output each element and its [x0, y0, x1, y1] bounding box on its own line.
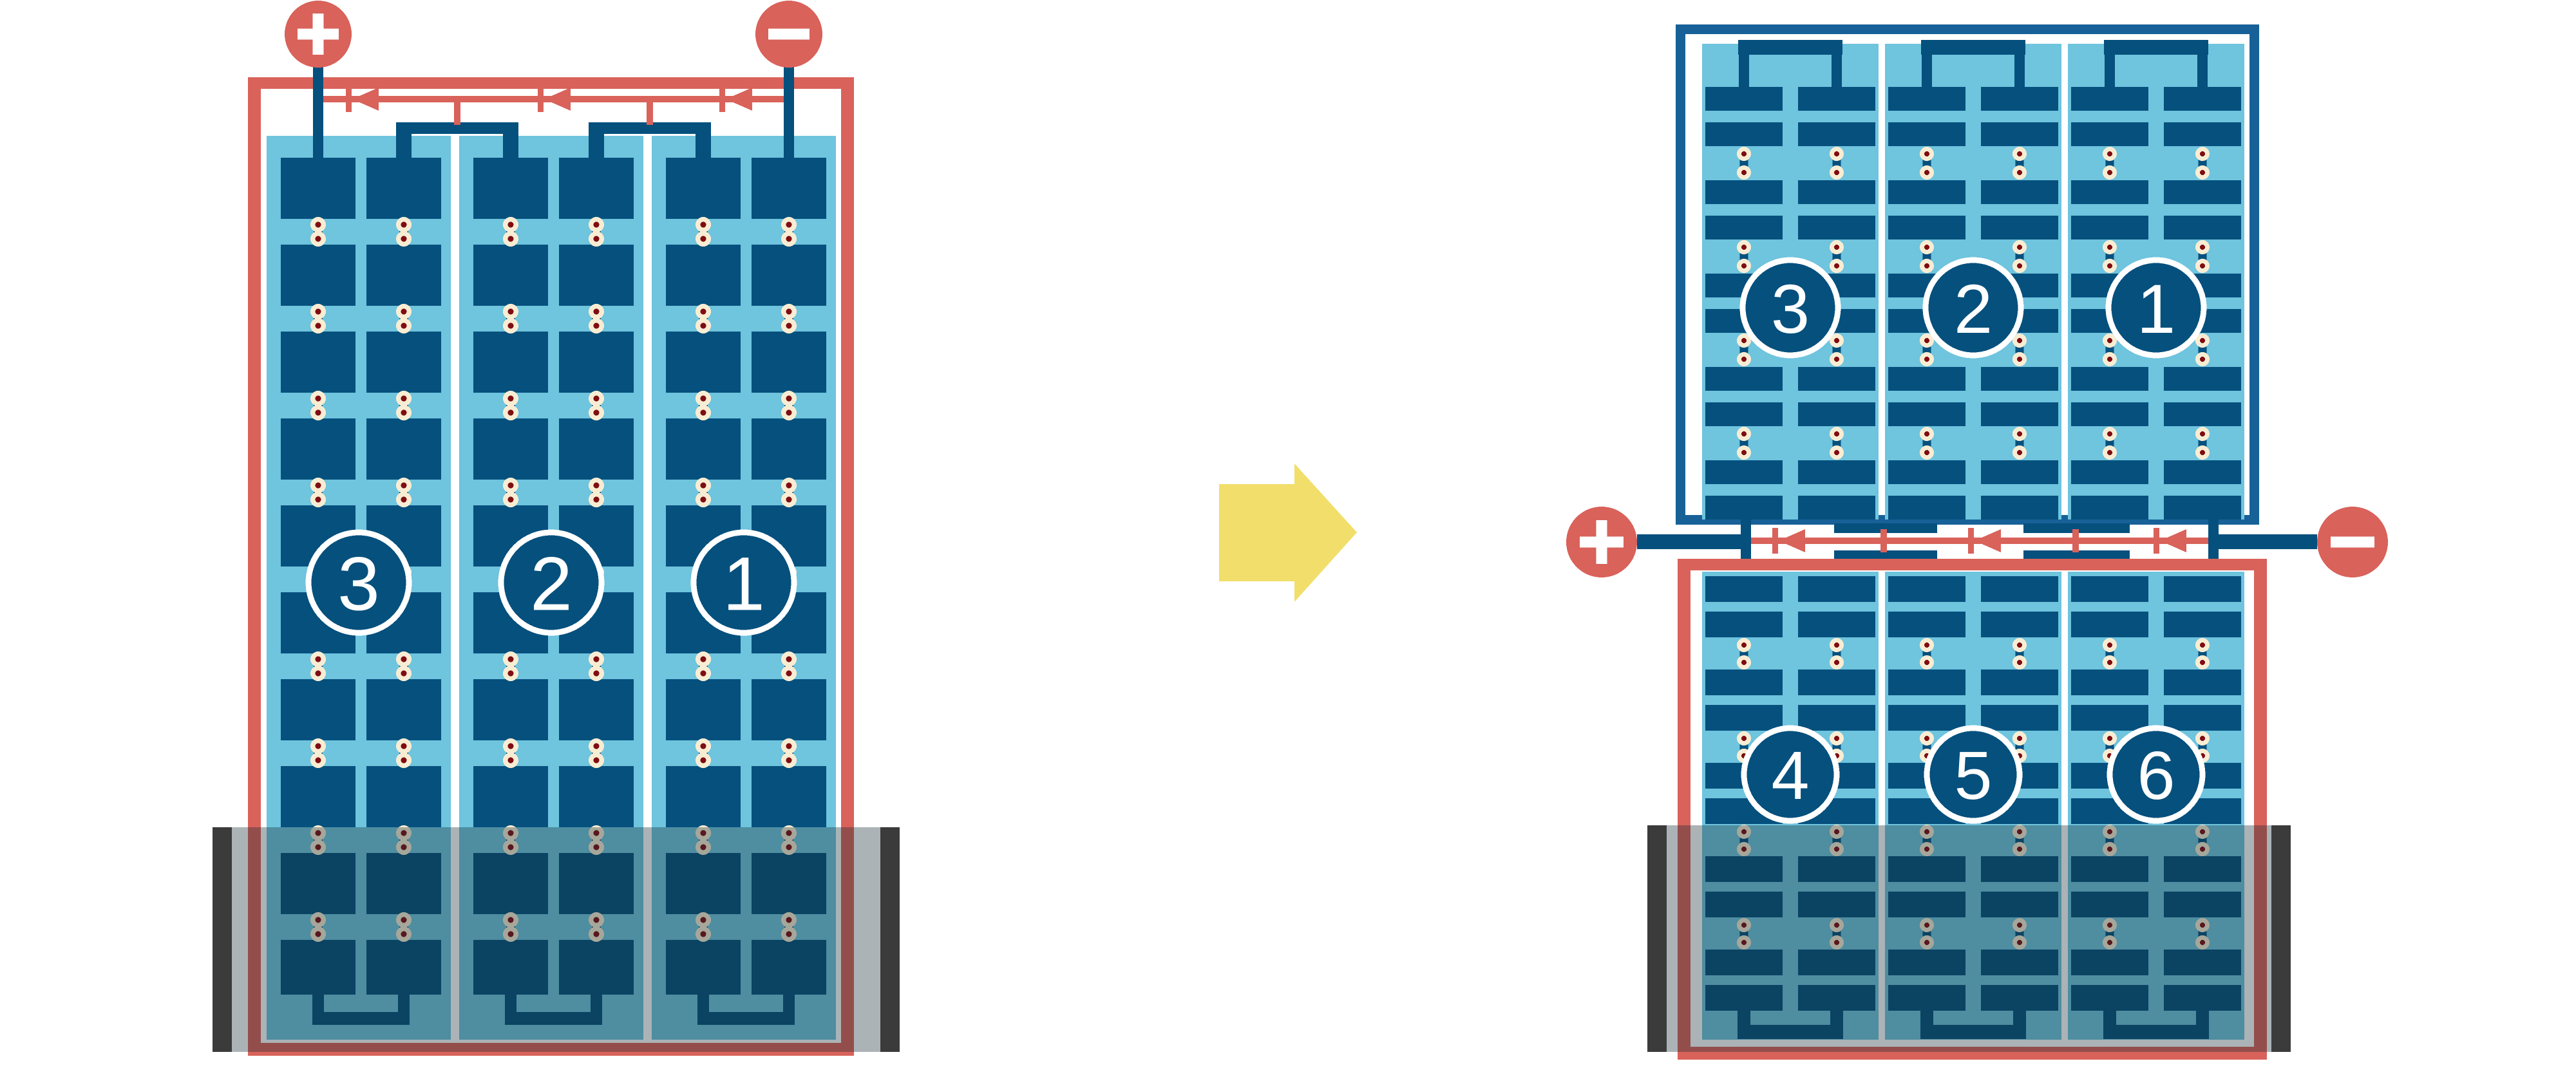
solder-joint-core: [594, 497, 600, 503]
solar-half-cell: [1981, 670, 2058, 695]
solder-joint-core: [508, 483, 514, 489]
solder-joint-core: [401, 309, 407, 315]
solar-cell: [666, 245, 741, 306]
solar-cell: [559, 766, 634, 827]
solar-cell: [559, 418, 634, 480]
solar-half-cell: [2164, 576, 2241, 602]
solder-joint-core: [1741, 338, 1747, 343]
diode-cathode-bar: [2154, 528, 2159, 554]
minus-terminal: −: [2317, 507, 2388, 577]
solder-joint-core: [1741, 660, 1747, 665]
frame-top: [1678, 559, 2267, 570]
solder-joint-core: [2017, 245, 2022, 250]
frame-left: [1676, 24, 1685, 525]
solder-joint-core: [2200, 170, 2205, 175]
shape: [1739, 55, 1749, 90]
solder-joint-core: [508, 410, 514, 416]
solder-joint-core: [401, 758, 407, 764]
solder-joint-core: [1834, 660, 1839, 665]
solar-half-cell: [1798, 87, 1875, 111]
solar-half-cell: [1888, 216, 1965, 239]
solar-half-cell: [2164, 460, 2241, 484]
solder-joint-core: [401, 236, 407, 242]
solder-joint-core: [2107, 245, 2112, 250]
solder-joint-core: [1924, 245, 1929, 250]
string-number-label: 2: [530, 541, 573, 626]
solar-cell: [473, 158, 548, 219]
solder-joint-core: [701, 744, 706, 749]
water-shade-region: [1647, 825, 2291, 1052]
mount-rail-right: [2271, 825, 2291, 1052]
shape: [396, 134, 412, 162]
shape: [1921, 40, 2025, 55]
solder-joint-core: [2200, 736, 2205, 741]
bypass-diode-icon: [346, 86, 379, 112]
solder-joint-core: [701, 497, 706, 503]
solder-joint-core: [1924, 263, 1929, 268]
solar-half-cell: [1705, 180, 1783, 204]
string-number-badge: 3: [308, 532, 409, 633]
solder-joint-core: [594, 744, 600, 749]
terminal-wire: [2208, 534, 2317, 549]
shape: [1922, 55, 1932, 90]
solder-joint-core: [1834, 431, 1839, 436]
diode-cathode-bar: [1772, 528, 1778, 554]
solar-half-cell: [2164, 496, 2241, 520]
solder-joint-core: [701, 410, 706, 416]
solder-joint-core: [508, 744, 514, 749]
solder-joint-core: [786, 497, 792, 503]
solder-joint-core: [1834, 263, 1839, 268]
solder-joint-core: [701, 323, 706, 329]
solder-joint-core: [401, 483, 407, 489]
solar-cell: [666, 418, 741, 480]
minus-terminal-glyph: [768, 29, 810, 40]
string-number-badge: 5: [1927, 728, 2020, 821]
solder-joint-core: [316, 236, 321, 242]
solar-half-cell: [1981, 496, 2058, 520]
solder-joint-core: [1834, 450, 1839, 455]
string-number-badge: 2: [1926, 260, 2021, 355]
solar-cell: [752, 332, 826, 393]
solder-joint-core: [401, 396, 407, 402]
solar-cell: [366, 245, 441, 306]
solar-half-cell: [2071, 705, 2148, 731]
bypass-diode-icon: [2154, 528, 2186, 554]
string-number-badge: 3: [1743, 260, 1838, 355]
solar-half-cell: [1888, 670, 1965, 695]
solder-joint-core: [2200, 450, 2205, 455]
solar-half-cell: [1798, 402, 1875, 426]
solder-joint-core: [2107, 151, 2112, 156]
solder-joint-core: [316, 410, 321, 416]
solder-joint-core: [701, 222, 706, 228]
solder-joint-core: [508, 758, 514, 764]
solder-joint-core: [594, 396, 600, 402]
solar-half-cell: [1705, 705, 1783, 731]
solar-half-cell: [1888, 87, 1965, 111]
solder-joint-core: [401, 497, 407, 503]
solder-joint-core: [1924, 450, 1929, 455]
solar-cell: [281, 679, 355, 740]
diode-cathode-bar: [1968, 528, 1974, 554]
solder-joint-core: [2200, 245, 2205, 250]
bypass-diode-icon: [719, 86, 752, 112]
solder-joint-core: [1834, 642, 1839, 648]
solder-joint-core: [316, 744, 321, 749]
solar-half-cell: [1798, 122, 1875, 146]
solder-joint-core: [1741, 357, 1747, 362]
solder-joint-core: [401, 222, 407, 228]
solar-cell: [366, 418, 441, 480]
solar-cell: [559, 332, 634, 393]
solder-joint-core: [594, 323, 600, 329]
solar-cell: [281, 158, 355, 219]
string-number-badge: 2: [501, 532, 601, 633]
water-shade-region: [213, 827, 900, 1052]
string-number-label: 6: [2137, 738, 2175, 814]
solar-half-cell: [1705, 367, 1783, 391]
plus-terminal-glyph: [313, 14, 324, 55]
solar-half-cell: [2164, 705, 2241, 731]
solar-half-cell: [2164, 122, 2241, 146]
solar-half-cell: [2071, 216, 2148, 239]
solder-joint-core: [594, 410, 600, 416]
solder-joint-core: [2107, 431, 2112, 436]
solder-joint-core: [2017, 263, 2022, 268]
solder-joint-core: [786, 396, 792, 402]
solder-joint-core: [2017, 642, 2022, 648]
terminal-bus: [784, 63, 794, 161]
solder-joint-core: [316, 323, 321, 329]
solder-joint-core: [701, 236, 706, 242]
solder-joint-core: [2017, 450, 2022, 455]
solder-joint-core: [1924, 357, 1929, 362]
solder-joint-core: [786, 483, 792, 489]
solder-joint-core: [1741, 263, 1747, 268]
solar-half-cell: [2164, 367, 2241, 391]
solar-half-cell: [2071, 122, 2148, 146]
solar-cell: [752, 158, 826, 219]
solar-cell: [366, 332, 441, 393]
solar-cell: [666, 679, 741, 740]
solder-joint-core: [316, 396, 321, 402]
solder-joint-core: [2107, 263, 2112, 268]
string-number-label: 3: [1771, 270, 1810, 348]
solder-joint-core: [2017, 736, 2022, 741]
right-arrow-icon: [1219, 464, 1357, 602]
solar-cell: [473, 332, 548, 393]
diode-tap: [454, 102, 460, 125]
solder-joint-core: [594, 657, 600, 662]
solar-cell: [473, 418, 548, 480]
solder-joint-core: [316, 671, 321, 677]
string-number-label: 3: [337, 541, 380, 626]
solar-half-cell: [1798, 180, 1875, 204]
diode-triangle: [2160, 529, 2186, 552]
solder-joint-core: [786, 309, 792, 315]
solar-half-cell: [1798, 670, 1875, 695]
diode-triangle: [1779, 529, 1805, 552]
solar-half-cell: [1888, 705, 1965, 731]
solar-half-cell: [1981, 460, 2058, 484]
solar-half-cell: [1981, 87, 2058, 111]
string-number-badge: 6: [2110, 728, 2202, 821]
solar-half-cell: [1888, 367, 1965, 391]
solder-joint-core: [1924, 151, 1929, 156]
solder-joint-core: [2200, 263, 2205, 268]
solar-half-cell: [1888, 122, 1965, 146]
solder-joint-core: [2200, 660, 2205, 665]
solar-cell: [473, 679, 548, 740]
solder-joint-core: [508, 657, 514, 662]
solar-cell: [752, 766, 826, 827]
solar-half-cell: [2071, 612, 2148, 637]
solar-cell: [281, 418, 355, 480]
solar-cell: [281, 332, 355, 393]
solder-joint-core: [508, 497, 514, 503]
solder-joint-core: [508, 309, 514, 315]
solder-joint-core: [401, 323, 407, 329]
solar-half-cell: [2071, 460, 2148, 484]
solder-joint-core: [701, 657, 706, 662]
solar-half-cell: [2071, 576, 2148, 602]
solder-joint-core: [1741, 736, 1747, 741]
diode-cathode-bar: [346, 86, 352, 112]
solder-joint-core: [2017, 431, 2022, 436]
solder-joint-core: [1924, 431, 1929, 436]
solar-cell: [366, 158, 441, 219]
solder-joint-core: [2200, 357, 2205, 362]
solder-joint-core: [2017, 338, 2022, 343]
string-number-badge: 1: [2108, 260, 2204, 355]
shape: [1832, 55, 1842, 90]
minus-terminal-glyph: [2331, 537, 2374, 548]
solar-half-cell: [1981, 122, 2058, 146]
solar-cell: [752, 679, 826, 740]
solar-half-cell: [1705, 87, 1783, 111]
solar-half-cell: [1981, 402, 2058, 426]
mount-rail-right: [880, 827, 900, 1052]
solder-joint-core: [2200, 642, 2205, 648]
diode-cathode-bar: [538, 86, 544, 112]
diode-triangle: [352, 88, 379, 111]
solder-joint-core: [786, 323, 792, 329]
shape: [2104, 40, 2208, 55]
solar-half-cell: [2164, 180, 2241, 204]
solder-joint-core: [786, 671, 792, 677]
solar-half-cell: [2164, 402, 2241, 426]
solar-cell: [473, 245, 548, 306]
solder-joint-core: [1924, 660, 1929, 665]
solder-joint-core: [1924, 338, 1929, 343]
string-number-badge: 4: [1744, 728, 1837, 821]
string-number-label: 1: [723, 541, 765, 626]
solar-cell: [366, 766, 441, 827]
solder-joint-core: [508, 671, 514, 677]
solar-half-cell: [2071, 87, 2148, 111]
solder-joint-core: [2107, 357, 2112, 362]
solar-half-cell: [1798, 496, 1875, 520]
solder-joint-core: [508, 236, 514, 242]
plus-terminal: +: [285, 1, 352, 68]
solar-cell: [366, 679, 441, 740]
solar-cell: [559, 158, 634, 219]
solder-joint-core: [316, 497, 321, 503]
solder-joint-core: [508, 222, 514, 228]
string-number-label: 2: [1954, 270, 1993, 348]
solar-half-cell: [2164, 87, 2241, 111]
solar-half-cell: [1888, 576, 1965, 602]
solar-half-cell: [1705, 670, 1783, 695]
shape: [589, 134, 604, 162]
mount-rail-left: [1647, 825, 1667, 1052]
solar-half-cell: [1981, 576, 2058, 602]
solder-joint-core: [316, 758, 321, 764]
solder-joint-core: [701, 309, 706, 315]
solder-joint-core: [1924, 170, 1929, 175]
solder-joint-core: [508, 396, 514, 402]
solder-joint-core: [316, 309, 321, 315]
solder-joint-core: [1741, 431, 1747, 436]
diode-triangle: [726, 88, 752, 111]
solder-joint-core: [2017, 357, 2022, 362]
solar-half-cell: [2071, 402, 2148, 426]
solder-joint-core: [594, 758, 600, 764]
solar-half-cell: [2164, 670, 2241, 695]
solder-joint-core: [2107, 338, 2112, 343]
solder-joint-core: [786, 657, 792, 662]
solder-joint-core: [786, 410, 792, 416]
solder-joint-core: [701, 671, 706, 677]
solar-half-cell: [1705, 402, 1783, 426]
solder-joint-core: [1741, 245, 1747, 250]
solder-joint-core: [2017, 170, 2022, 175]
solar-half-cell: [2164, 612, 2241, 637]
solder-joint-core: [594, 222, 600, 228]
solar-half-cell: [1798, 367, 1875, 391]
shape: [503, 134, 518, 162]
frame-top: [248, 77, 854, 89]
solder-joint-core: [1834, 736, 1839, 741]
solder-joint-core: [1741, 170, 1747, 175]
solar-cell: [281, 766, 355, 827]
solar-cell: [666, 332, 741, 393]
bypass-diode-circuit: [318, 86, 789, 125]
solar-half-cell: [2164, 216, 2241, 239]
solder-joint-core: [1834, 245, 1839, 250]
solder-joint-core: [1834, 338, 1839, 343]
solar-half-cell: [1888, 496, 1965, 520]
mount-rail-left: [213, 827, 232, 1052]
solder-joint-core: [2017, 151, 2022, 156]
solder-joint-core: [508, 323, 514, 329]
solder-joint-core: [1834, 170, 1839, 175]
solar-half-cell: [1798, 612, 1875, 637]
solder-joint-core: [786, 758, 792, 764]
solder-joint-core: [594, 483, 600, 489]
solder-joint-core: [2107, 170, 2112, 175]
solar-half-cell: [1981, 612, 2058, 637]
solder-joint-core: [594, 309, 600, 315]
solder-joint-core: [1834, 357, 1839, 362]
plus-terminal: +: [1566, 507, 1637, 577]
diode-tap: [2072, 529, 2079, 552]
solar-half-cell: [1888, 612, 1965, 637]
diode-triangle: [1975, 529, 2001, 552]
solar-half-cell: [1705, 576, 1783, 602]
solar-half-cell: [1705, 122, 1783, 146]
diagram-canvas: +−321 321+−456: [0, 0, 2576, 1068]
shape: [1738, 40, 1842, 55]
shade-overlay: [1647, 825, 2291, 1052]
solder-joint-core: [401, 744, 407, 749]
solder-joint-core: [594, 236, 600, 242]
transform-arrow-icon: [1219, 464, 1357, 602]
solder-joint-core: [2017, 660, 2022, 665]
solar-cell: [559, 245, 634, 306]
solder-joint-core: [1924, 736, 1929, 741]
minus-terminal: −: [755, 1, 822, 68]
solar-cell: [666, 158, 741, 219]
solar-half-cell: [1798, 576, 1875, 602]
left-module-full-cell: +−321: [213, 1, 900, 1056]
solar-half-cell: [1888, 180, 1965, 204]
solder-joint-core: [701, 396, 706, 402]
diode-triangle: [544, 88, 571, 111]
shape: [2014, 55, 2025, 90]
solder-joint-core: [2200, 431, 2205, 436]
solder-joint-core: [786, 744, 792, 749]
solar-half-cell: [1981, 216, 2058, 239]
solar-half-cell: [1888, 402, 1965, 426]
solar-cell: [281, 245, 355, 306]
solder-joint-core: [2107, 660, 2112, 665]
solar-half-cell: [2071, 180, 2148, 204]
solar-half-cell: [1981, 705, 2058, 731]
shape: [2105, 55, 2115, 90]
solar-half-cell: [2071, 670, 2148, 695]
solder-joint-core: [1741, 642, 1747, 648]
string-number-label: 1: [2137, 270, 2175, 348]
plus-terminal-glyph: [1596, 520, 1607, 564]
solder-joint-core: [594, 671, 600, 677]
solder-joint-core: [1741, 151, 1747, 156]
frame-top: [1676, 24, 2259, 34]
solar-half-cell: [1798, 216, 1875, 239]
solder-joint-core: [2107, 736, 2112, 741]
solar-half-cell: [2071, 367, 2148, 391]
solar-half-cell: [1705, 460, 1783, 484]
solder-joint-core: [2200, 338, 2205, 343]
solder-joint-core: [401, 657, 407, 662]
solar-half-cell: [1798, 460, 1875, 484]
solder-joint-core: [316, 657, 321, 662]
right-module-half-cut-cell: 321+−456: [1566, 24, 2388, 1060]
string-number-label: 5: [1955, 738, 1993, 814]
solar-half-cell: [1705, 612, 1783, 637]
solar-cell: [473, 766, 548, 827]
solder-joint-core: [401, 671, 407, 677]
solder-joint-core: [401, 410, 407, 416]
shape: [2197, 55, 2208, 90]
solar-cell: [559, 679, 634, 740]
bypass-diode-icon: [1772, 528, 1805, 554]
solar-half-cell: [1981, 367, 2058, 391]
solder-joint-core: [701, 758, 706, 764]
solder-joint-core: [1741, 450, 1747, 455]
solder-joint-core: [316, 483, 321, 489]
